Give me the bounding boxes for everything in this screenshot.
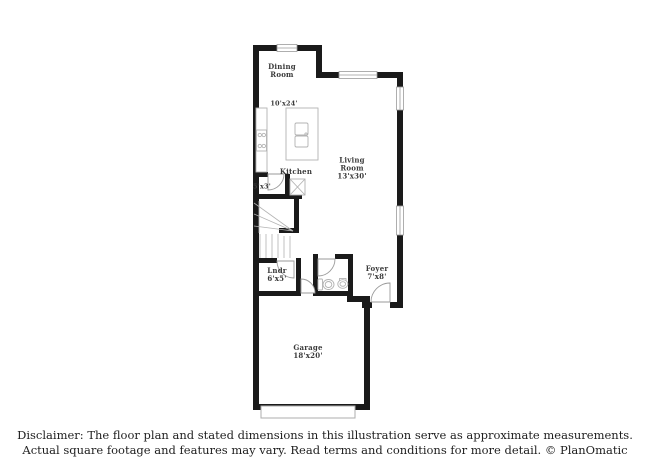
wall-stair-side (294, 199, 299, 233)
room-label-foyer: Foyer 7'x8' (366, 265, 388, 281)
room-label-living: Living Room 13'x30' (337, 156, 366, 179)
window-living-top (339, 72, 377, 79)
wall-powder-top-left (313, 254, 318, 259)
floorplan-page: Dining Room 10'x24' Kitchen Living Room … (0, 0, 650, 473)
room-label-laundry: Lndr 6'x5' (267, 267, 286, 283)
wall-left (253, 45, 259, 410)
window-dining-top (277, 45, 297, 52)
room-dims-closet: 5'x3' (253, 183, 271, 190)
wall-laundry-right (296, 258, 301, 296)
cooktop (257, 130, 267, 151)
garage-door (261, 406, 355, 418)
wall-closet-divider (285, 174, 290, 199)
front-door (371, 283, 390, 302)
utility-box (290, 179, 305, 195)
garage-entry-door (301, 279, 315, 293)
wall-laundry-bottom (253, 291, 301, 296)
room-label-garage: Garage 18'x20' (293, 344, 322, 360)
toilet (318, 279, 334, 290)
powder-room-fixtures (318, 279, 348, 291)
wall-powder-bottom (313, 291, 353, 296)
room-label-dining: Dining Room (268, 63, 296, 79)
room-label-kitchen: Kitchen (280, 168, 312, 176)
wall-foyer-bottom-right (390, 302, 403, 308)
disclaimer-line-1: Disclaimer: The floor plan and stated di… (0, 428, 650, 443)
disclaimer-text: Disclaimer: The floor plan and stated di… (0, 428, 650, 458)
island-sink (295, 123, 308, 147)
window-living-right-upper (397, 87, 404, 110)
bathroom-sink (338, 279, 348, 289)
room-dims-dining: 10'x24' (270, 100, 297, 107)
disclaimer-line-2: Actual square footage and features may v… (0, 443, 650, 458)
wall-garage-right (364, 296, 370, 410)
powder-room-door (318, 259, 335, 276)
wall-laundry-top (253, 258, 277, 263)
window-living-right-lower (397, 206, 404, 235)
wall-closet-top (253, 172, 268, 177)
floorplan-drawing (0, 0, 650, 473)
